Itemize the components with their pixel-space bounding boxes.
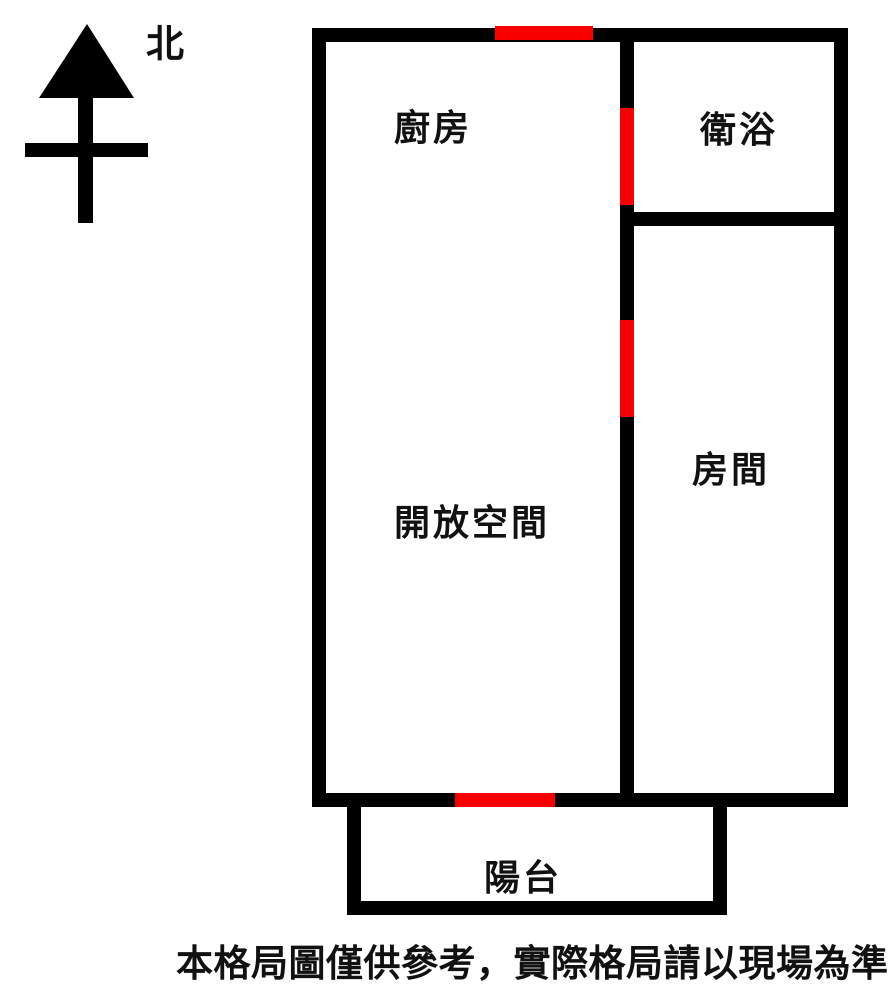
north-arrow-icon (20, 20, 155, 225)
room-label-open-space: 開放空間 (394, 494, 550, 546)
room-label-bedroom: 房間 (692, 441, 770, 493)
wall-bathroom-bottom (620, 212, 848, 226)
disclaimer-text: 本格局圖僅供參考，實際格局請以現場為準 (176, 933, 889, 986)
balcony-wall-right (713, 807, 727, 915)
wall-right (834, 28, 848, 807)
north-label: 北 (146, 26, 184, 64)
wall-left (312, 28, 326, 807)
balcony-wall-bottom (347, 901, 727, 915)
balcony-wall-left (347, 807, 361, 915)
opening-marker-bathroom-door (620, 108, 634, 205)
room-label-bathroom: 衛浴 (700, 101, 778, 153)
room-label-kitchen: 廚房 (394, 99, 472, 151)
opening-marker-top-wall (495, 26, 593, 40)
opening-marker-balcony-door (455, 793, 555, 807)
room-label-balcony: 陽台 (484, 849, 562, 901)
opening-marker-bedroom-door (620, 320, 634, 417)
wall-bottom (312, 793, 848, 807)
floor-plan-page: 北 廚房 衛浴 房間 開放空間 陽台 本格局圖僅供參考，實際格局請以現場為準 (0, 0, 889, 986)
